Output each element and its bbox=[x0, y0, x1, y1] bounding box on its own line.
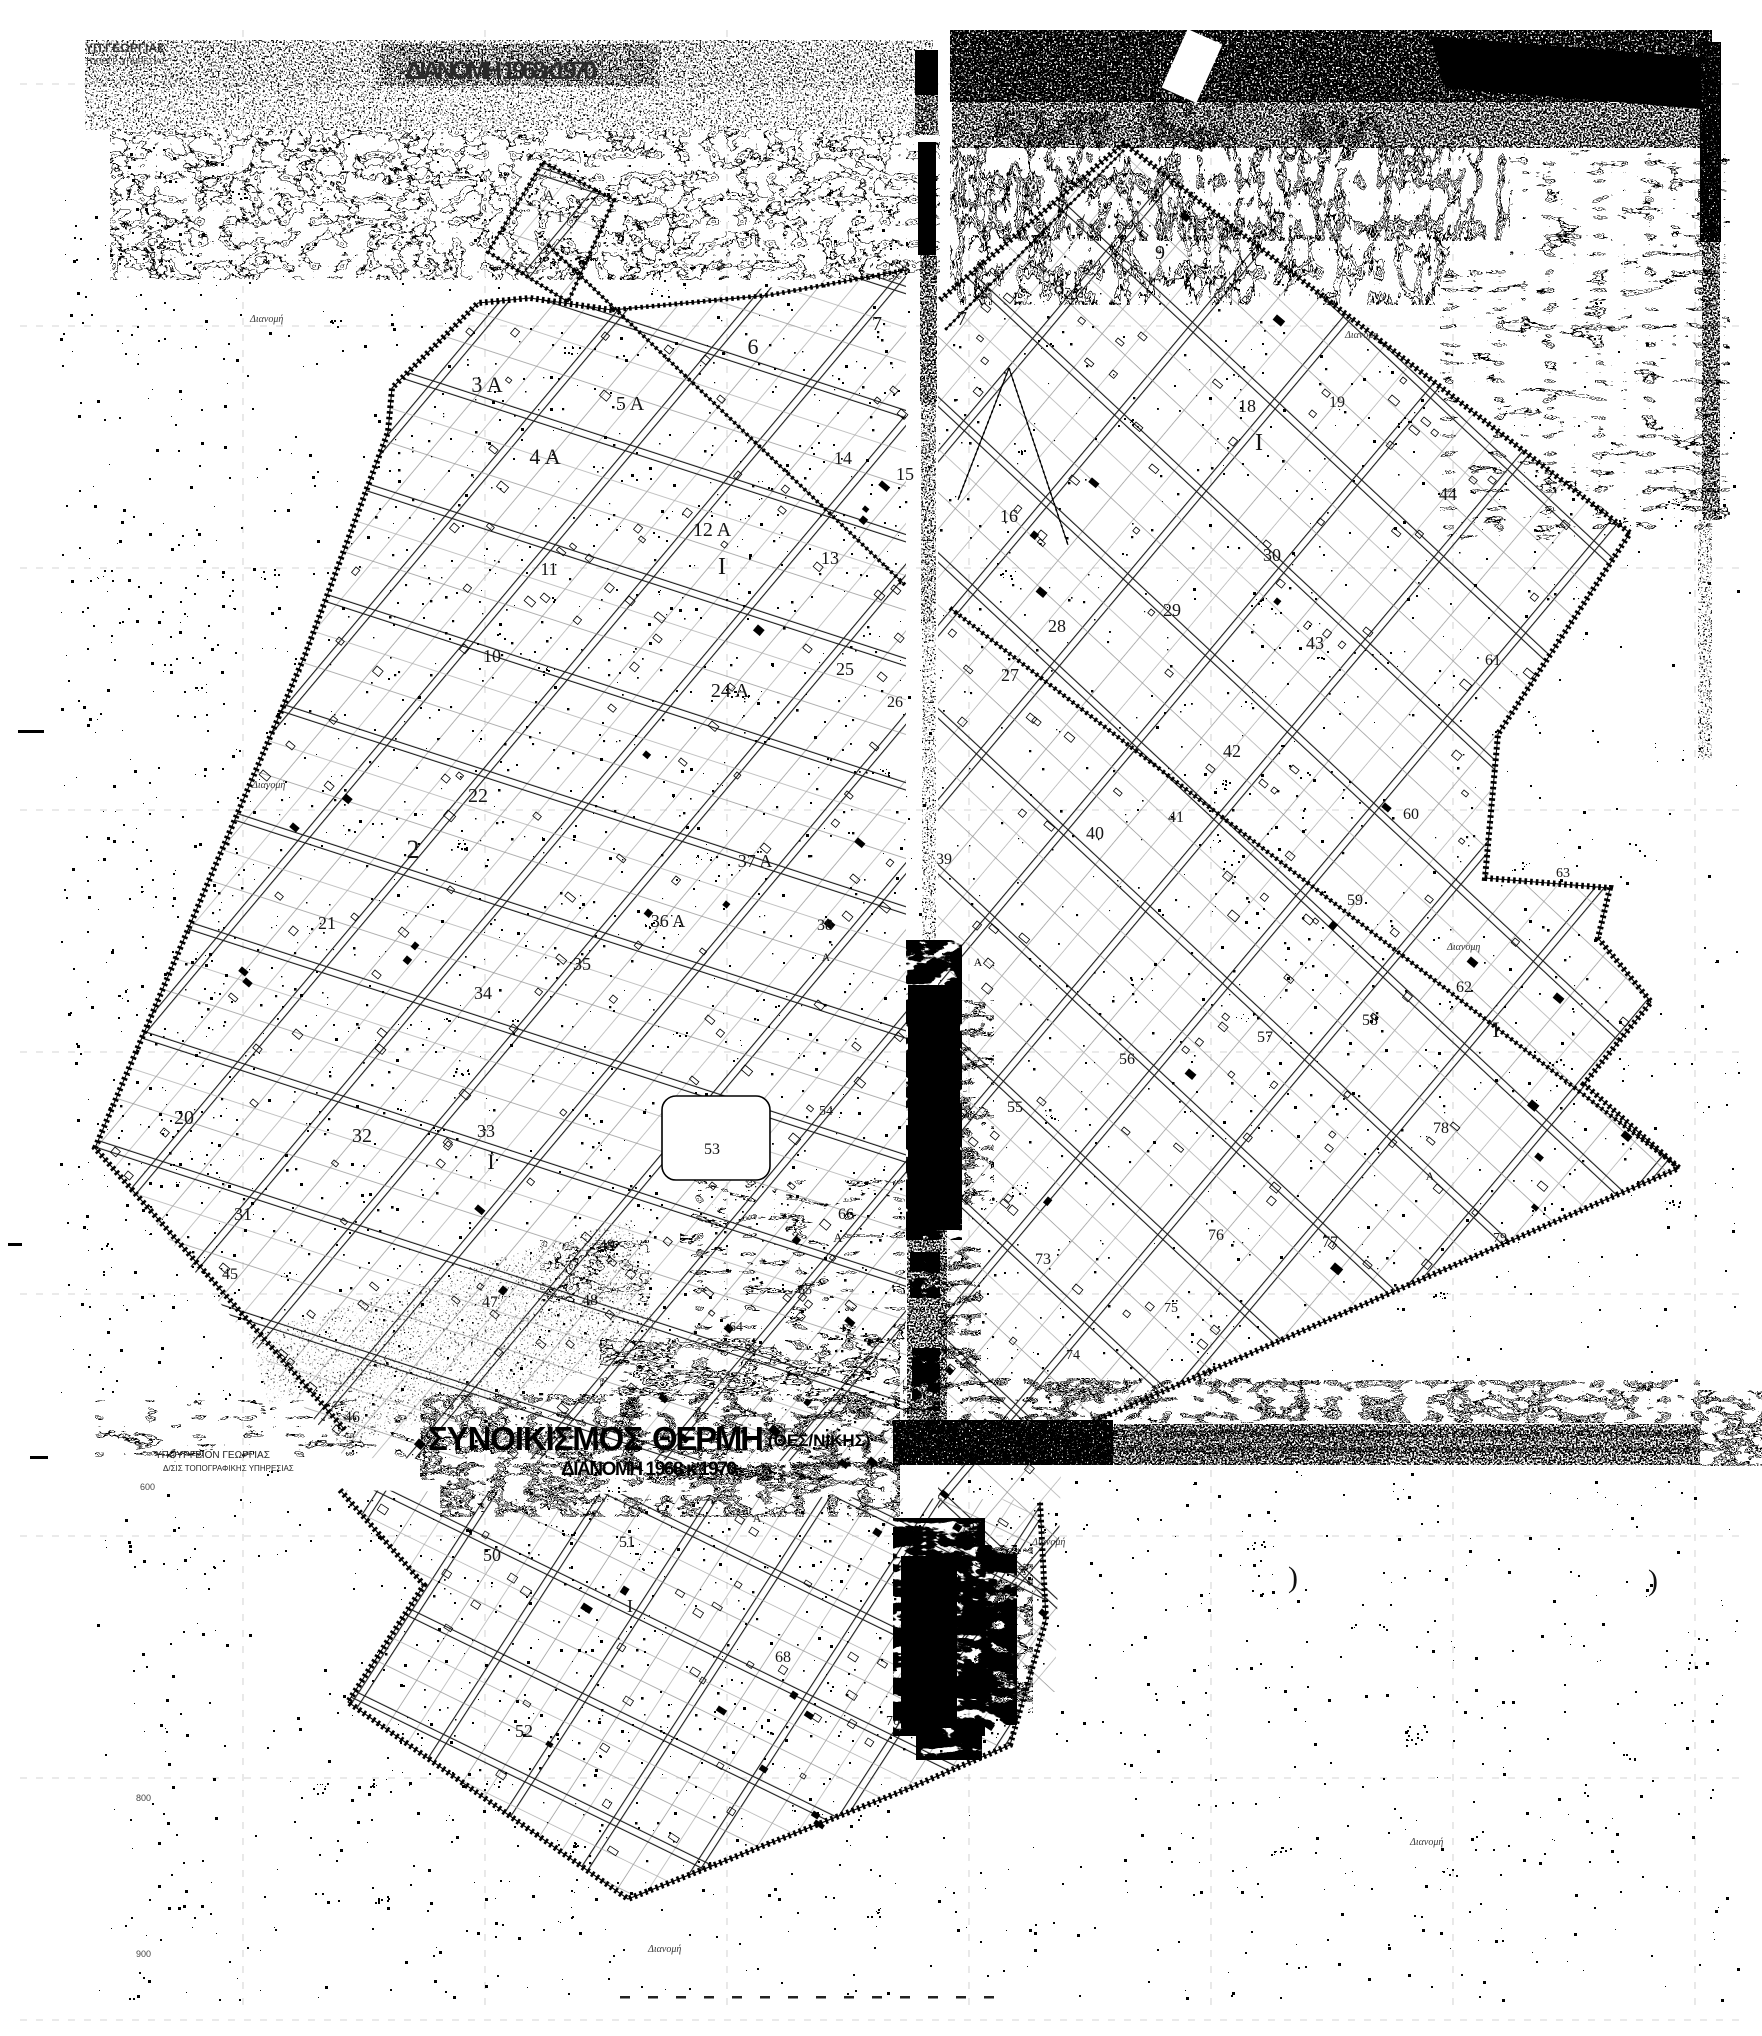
svg-text:11: 11 bbox=[540, 559, 557, 579]
svg-text:79: 79 bbox=[1493, 1231, 1507, 1246]
svg-text:34: 34 bbox=[474, 983, 492, 1003]
svg-text:60: 60 bbox=[1403, 806, 1419, 823]
svg-text:13: 13 bbox=[821, 548, 839, 568]
svg-text:16: 16 bbox=[1000, 506, 1018, 526]
svg-text:3 A: 3 A bbox=[471, 372, 502, 397]
svg-text:76: 76 bbox=[1208, 1227, 1224, 1244]
svg-text:62: 62 bbox=[1456, 979, 1472, 996]
svg-text:78: 78 bbox=[1433, 1120, 1449, 1137]
svg-text:58: 58 bbox=[1362, 1012, 1378, 1029]
svg-text:ΔΙΑΝΟΜΗ 1968 κ 1970: ΔΙΑΝΟΜΗ 1968 κ 1970 bbox=[561, 1459, 737, 1480]
svg-text:57: 57 bbox=[1257, 1029, 1273, 1046]
svg-text:800: 800 bbox=[136, 1793, 151, 1803]
svg-text:600: 600 bbox=[140, 1482, 155, 1492]
svg-text:68: 68 bbox=[775, 1649, 791, 1666]
svg-text:5 A: 5 A bbox=[616, 393, 645, 415]
svg-text:A: A bbox=[974, 955, 983, 969]
svg-text:51: 51 bbox=[619, 1534, 635, 1551]
svg-text:900: 900 bbox=[136, 1949, 151, 1959]
svg-text:ΥΠΟΥΡΓΕΙΟΝ ΓΕΩΡΓΙΑΣ: ΥΠΟΥΡΓΕΙΟΝ ΓΕΩΡΓΙΑΣ bbox=[155, 1450, 270, 1461]
svg-text:6: 6 bbox=[748, 334, 759, 359]
svg-text:20: 20 bbox=[174, 1107, 194, 1129]
svg-text:Δ/ΣΙΣ ΤΟΠΟΓΡΑΦΙΚΗΣ ΥΠΗΡΕΣΙΑΣ: Δ/ΣΙΣ ΤΟΠΟΓΡΑΦΙΚΗΣ ΥΠΗΡΕΣΙΑΣ bbox=[163, 1464, 294, 1473]
svg-text:31: 31 bbox=[234, 1204, 252, 1224]
svg-text:10: 10 bbox=[483, 646, 501, 666]
svg-text:45: 45 bbox=[222, 1266, 238, 1283]
svg-text:32: 32 bbox=[352, 1125, 372, 1147]
svg-text:I: I bbox=[718, 554, 726, 580]
svg-text:61: 61 bbox=[1485, 652, 1501, 669]
svg-text:24 A: 24 A bbox=[711, 680, 750, 702]
svg-text:Διανομη: Διανομη bbox=[1446, 942, 1480, 953]
svg-text:26: 26 bbox=[887, 694, 903, 711]
svg-text:4 A: 4 A bbox=[529, 444, 560, 469]
svg-text:56: 56 bbox=[1119, 1051, 1135, 1068]
svg-text:42: 42 bbox=[1223, 741, 1241, 761]
svg-text:54: 54 bbox=[819, 1104, 833, 1119]
svg-text:Διανομή: Διανομή bbox=[647, 1944, 681, 1955]
svg-text:37 A: 37 A bbox=[738, 851, 773, 871]
svg-text:(ΘΕΣ/ΝΙΚΗΣ): (ΘΕΣ/ΝΙΚΗΣ) bbox=[768, 1431, 871, 1450]
svg-text:52: 52 bbox=[515, 1721, 533, 1741]
svg-text:Διανομή: Διανομή bbox=[1409, 1837, 1443, 1848]
svg-text:15: 15 bbox=[896, 464, 914, 484]
svg-text:ΣΥΝΟΙΚΙΣΜΟΣ: ΣΥΝΟΙΚΙΣΜΟΣ bbox=[428, 1420, 643, 1457]
svg-text:75: 75 bbox=[1164, 1301, 1178, 1316]
svg-text:ΔΙΑΝΟΜΗ 1968κ1970: ΔΙΑΝΟΜΗ 1968κ1970 bbox=[405, 57, 597, 85]
svg-text:33: 33 bbox=[477, 1121, 495, 1141]
svg-text:ΥΠ.ΓΕΩΡΓΙΑΣ: ΥΠ.ΓΕΩΡΓΙΑΣ bbox=[85, 41, 164, 55]
svg-text:Διανομή: Διανομή bbox=[1031, 1537, 1065, 1548]
svg-text:7: 7 bbox=[957, 308, 967, 330]
svg-text:55: 55 bbox=[1007, 1099, 1023, 1116]
svg-text:35: 35 bbox=[573, 954, 591, 974]
svg-text:74: 74 bbox=[1066, 1348, 1080, 1363]
svg-text:7: 7 bbox=[872, 313, 882, 335]
svg-text:43: 43 bbox=[1306, 633, 1324, 653]
svg-text:): ) bbox=[1288, 1561, 1298, 1594]
svg-text:18: 18 bbox=[1238, 396, 1256, 416]
svg-text:63: 63 bbox=[1556, 866, 1570, 881]
svg-text:39: 39 bbox=[936, 851, 952, 868]
svg-text:30: 30 bbox=[1263, 545, 1281, 565]
svg-text:12 A: 12 A bbox=[693, 519, 732, 541]
svg-text:A: A bbox=[1426, 1169, 1435, 1183]
svg-text:Διανομή: Διανομή bbox=[251, 780, 285, 791]
svg-text:40: 40 bbox=[1086, 823, 1104, 843]
svg-text:ΤΟΠΟΓΡ. ΥΠΗΡΕΣΙΑΣ: ΤΟΠΟΓΡ. ΥΠΗΡΕΣΙΑΣ bbox=[85, 57, 166, 66]
svg-text:I: I bbox=[627, 1596, 633, 1616]
svg-text:28: 28 bbox=[1048, 616, 1066, 636]
svg-text:73: 73 bbox=[1035, 1251, 1051, 1268]
svg-text:27: 27 bbox=[1001, 665, 1019, 685]
svg-text:25: 25 bbox=[836, 659, 854, 679]
svg-text:19: 19 bbox=[1329, 394, 1345, 411]
svg-text:2: 2 bbox=[407, 835, 420, 864]
svg-text:I: I bbox=[1255, 430, 1263, 456]
svg-text:I: I bbox=[1492, 1017, 1499, 1042]
svg-text:Διανομή: Διανομή bbox=[249, 314, 283, 325]
svg-text:41: 41 bbox=[1168, 809, 1184, 826]
svg-text:21: 21 bbox=[318, 913, 336, 933]
svg-text:38: 38 bbox=[817, 917, 833, 934]
svg-text:22: 22 bbox=[468, 785, 488, 807]
svg-text:50: 50 bbox=[483, 1545, 501, 1565]
svg-text:A: A bbox=[822, 950, 831, 964]
svg-text:I: I bbox=[487, 1149, 494, 1174]
svg-text:77: 77 bbox=[1322, 1234, 1338, 1251]
svg-text:53: 53 bbox=[704, 1141, 720, 1158]
svg-text:Διανομη: Διανομη bbox=[1344, 330, 1378, 341]
svg-text:59: 59 bbox=[1347, 892, 1363, 909]
svg-text:36 A: 36 A bbox=[651, 911, 686, 931]
svg-text:29: 29 bbox=[1163, 600, 1181, 620]
svg-text:14: 14 bbox=[834, 448, 852, 468]
svg-text:): ) bbox=[1648, 1564, 1658, 1597]
